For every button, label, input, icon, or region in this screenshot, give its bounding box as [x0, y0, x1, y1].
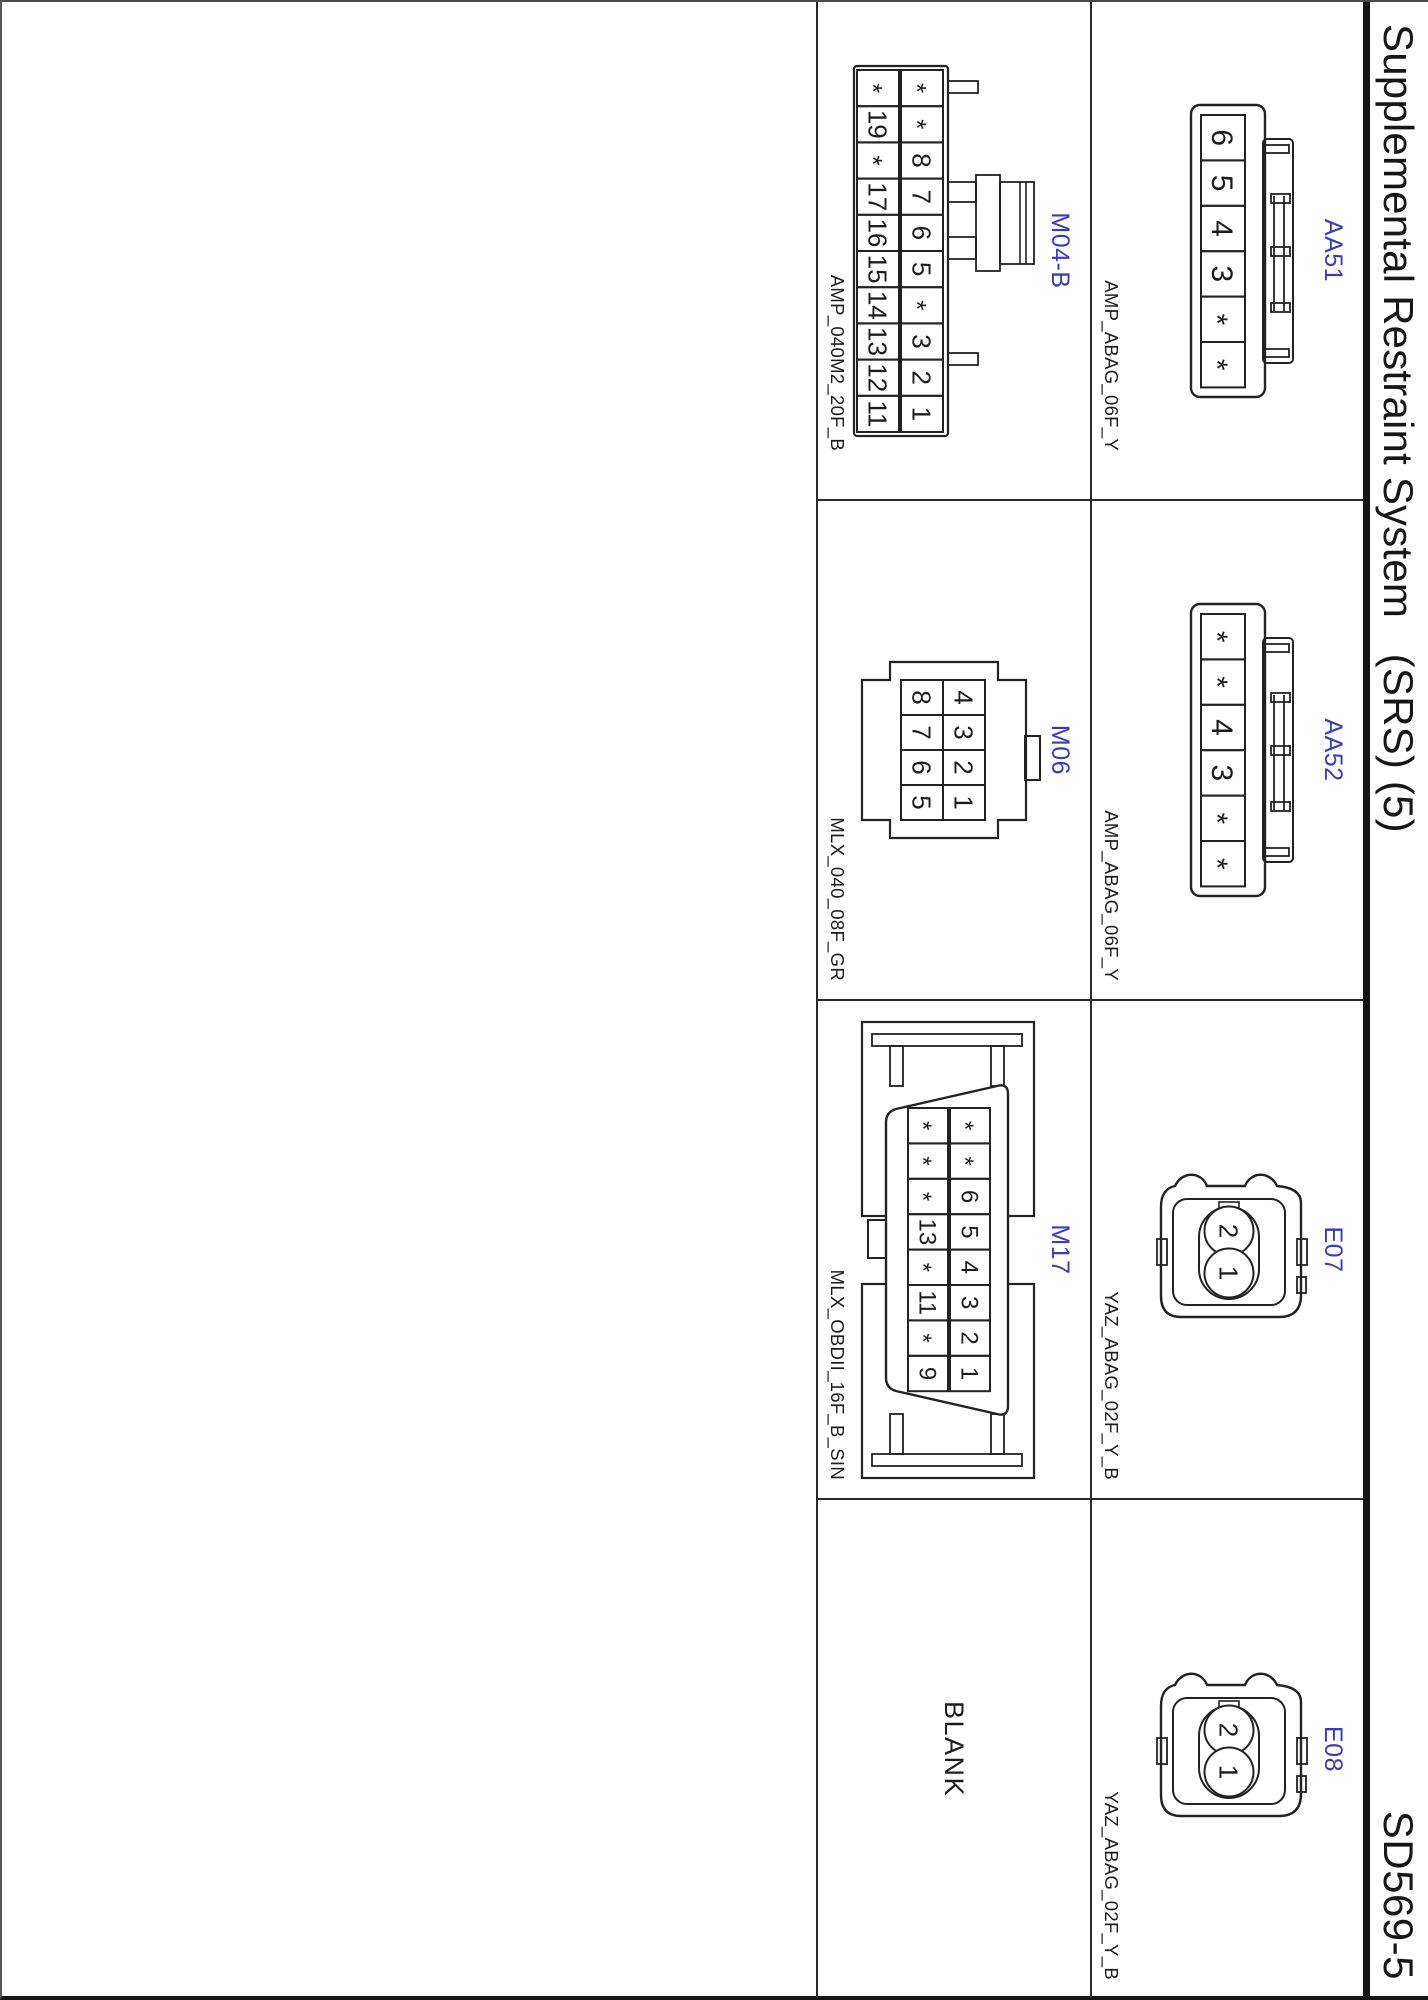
svg-text:*: *: [909, 1333, 936, 1342]
svg-text:2: 2: [1214, 1723, 1244, 1737]
svg-text:3: 3: [1205, 265, 1238, 282]
wiring-diagram-page: Supplemental Restraint System (SRS) (5) …: [0, 0, 1428, 2000]
part-number: YAZ_ABAG_02F_Y_B: [1100, 1791, 1122, 1980]
svg-text:*: *: [1200, 631, 1233, 643]
svg-text:9: 9: [913, 1366, 940, 1379]
svg-text:8: 8: [907, 690, 937, 704]
svg-text:*: *: [909, 1191, 936, 1200]
svg-text:3: 3: [1205, 765, 1238, 782]
svg-text:5: 5: [1205, 174, 1238, 191]
connector-drawing-E08: 21: [1150, 1668, 1309, 1830]
cell-BLANK: BLANK: [816, 1500, 1090, 1998]
svg-text:11: 11: [863, 400, 893, 427]
cell-AA52: AA52 **43** AMP_ABAG_06F_Y: [1090, 501, 1363, 1001]
connector-drawing-M04-B: **8765*321*19*17161514131211: [847, 51, 1042, 451]
part-number: AMP_ABAG_06F_Y: [1100, 280, 1122, 451]
svg-text:2: 2: [955, 1331, 982, 1344]
svg-text:19: 19: [863, 109, 893, 138]
svg-text:5: 5: [955, 1225, 982, 1238]
svg-text:*: *: [951, 1156, 978, 1165]
connector-drawing-M06: 43218765: [853, 650, 1042, 850]
svg-text:3: 3: [955, 1296, 982, 1309]
page-title: Supplemental Restraint System (SRS) (5): [1374, 24, 1422, 833]
svg-text:8: 8: [907, 153, 937, 167]
svg-text:4: 4: [955, 1260, 982, 1273]
connector-label: AA51: [1319, 219, 1347, 282]
svg-text:*: *: [858, 83, 888, 93]
connector-drawing-M17: **654321***13*11*9: [851, 1020, 1042, 1480]
svg-text:2: 2: [1214, 1223, 1244, 1237]
svg-text:12: 12: [863, 363, 893, 392]
blank-label: BLANK: [939, 1701, 970, 1797]
svg-text:5: 5: [907, 261, 937, 275]
connector-drawing-E07: 21: [1150, 1169, 1309, 1331]
part-number: AMP_040M2_20F_B: [826, 275, 848, 451]
doc-number: SD569-5: [1374, 1811, 1422, 1980]
svg-text:1: 1: [949, 795, 979, 809]
cell-M17: M17 **654321***13*11*9 MLX_OBDII_16F_B_S…: [816, 1001, 1090, 1500]
svg-text:1: 1: [1214, 1265, 1244, 1279]
svg-text:4: 4: [949, 690, 979, 704]
svg-text:6: 6: [907, 225, 937, 239]
cell-M04-B: M04-B **8765*321*19*17161514131211 AMP_0…: [816, 2, 1090, 501]
svg-text:11: 11: [913, 1290, 940, 1315]
connector-label: AA52: [1319, 718, 1347, 781]
svg-text:1: 1: [907, 406, 937, 420]
svg-text:*: *: [902, 119, 932, 129]
svg-text:4: 4: [1205, 220, 1238, 237]
svg-text:6: 6: [1205, 129, 1238, 146]
cell-AA51: AA51 6543** AMP_ABAG_06F_Y: [1090, 2, 1363, 501]
svg-text:3: 3: [949, 725, 979, 739]
svg-text:*: *: [909, 1121, 936, 1130]
svg-text:1: 1: [955, 1366, 982, 1379]
svg-text:6: 6: [955, 1189, 982, 1202]
svg-text:4: 4: [1205, 719, 1238, 736]
svg-text:*: *: [902, 83, 932, 93]
connector-drawing-AA51: 6543**: [1182, 101, 1309, 401]
svg-text:*: *: [909, 1262, 936, 1271]
part-number: MLX_040_08F_GR: [826, 817, 848, 981]
cell-E07: E07 21 YAZ_ABAG_02F_Y_B: [1090, 1001, 1363, 1500]
connector-label: M17: [1046, 1224, 1074, 1274]
svg-text:1: 1: [1214, 1765, 1244, 1779]
part-number: AMP_ABAG_06F_Y: [1100, 810, 1122, 981]
svg-text:*: *: [951, 1121, 978, 1130]
part-number: MLX_OBDII_16F_B_SIN: [826, 1270, 848, 1480]
svg-text:*: *: [1200, 313, 1233, 325]
svg-text:*: *: [902, 300, 932, 310]
connector-label: E08: [1319, 1726, 1347, 1772]
connector-label: M06: [1046, 725, 1074, 775]
svg-text:16: 16: [863, 218, 893, 247]
svg-text:7: 7: [907, 725, 937, 739]
svg-text:*: *: [1200, 676, 1233, 688]
svg-text:7: 7: [907, 189, 937, 203]
svg-text:13: 13: [863, 327, 893, 356]
svg-text:14: 14: [863, 290, 893, 319]
part-number: YAZ_ABAG_02F_Y_B: [1100, 1291, 1122, 1480]
title-bar: Supplemental Restraint System (SRS) (5) …: [1363, 2, 1428, 1996]
svg-text:2: 2: [907, 370, 937, 384]
connector-drawing-AA52: **43**: [1182, 600, 1309, 900]
svg-text:*: *: [1200, 358, 1233, 370]
cell-M06: M06 43218765 MLX_040_08F_GR: [816, 501, 1090, 1001]
svg-text:*: *: [1200, 812, 1233, 824]
svg-text:6: 6: [907, 760, 937, 774]
svg-text:17: 17: [863, 182, 893, 211]
svg-text:15: 15: [863, 254, 893, 283]
svg-text:5: 5: [907, 795, 937, 809]
cell-E08: E08 21 YAZ_ABAG_02F_Y_B: [1090, 1500, 1363, 1998]
svg-text:13: 13: [913, 1218, 940, 1245]
connector-label: M04-B: [1046, 212, 1074, 288]
svg-text:*: *: [1200, 858, 1233, 870]
svg-text:2: 2: [949, 760, 979, 774]
svg-text:*: *: [909, 1156, 936, 1165]
connector-label: E07: [1319, 1227, 1347, 1273]
svg-text:*: *: [858, 155, 888, 165]
svg-text:3: 3: [907, 334, 937, 348]
